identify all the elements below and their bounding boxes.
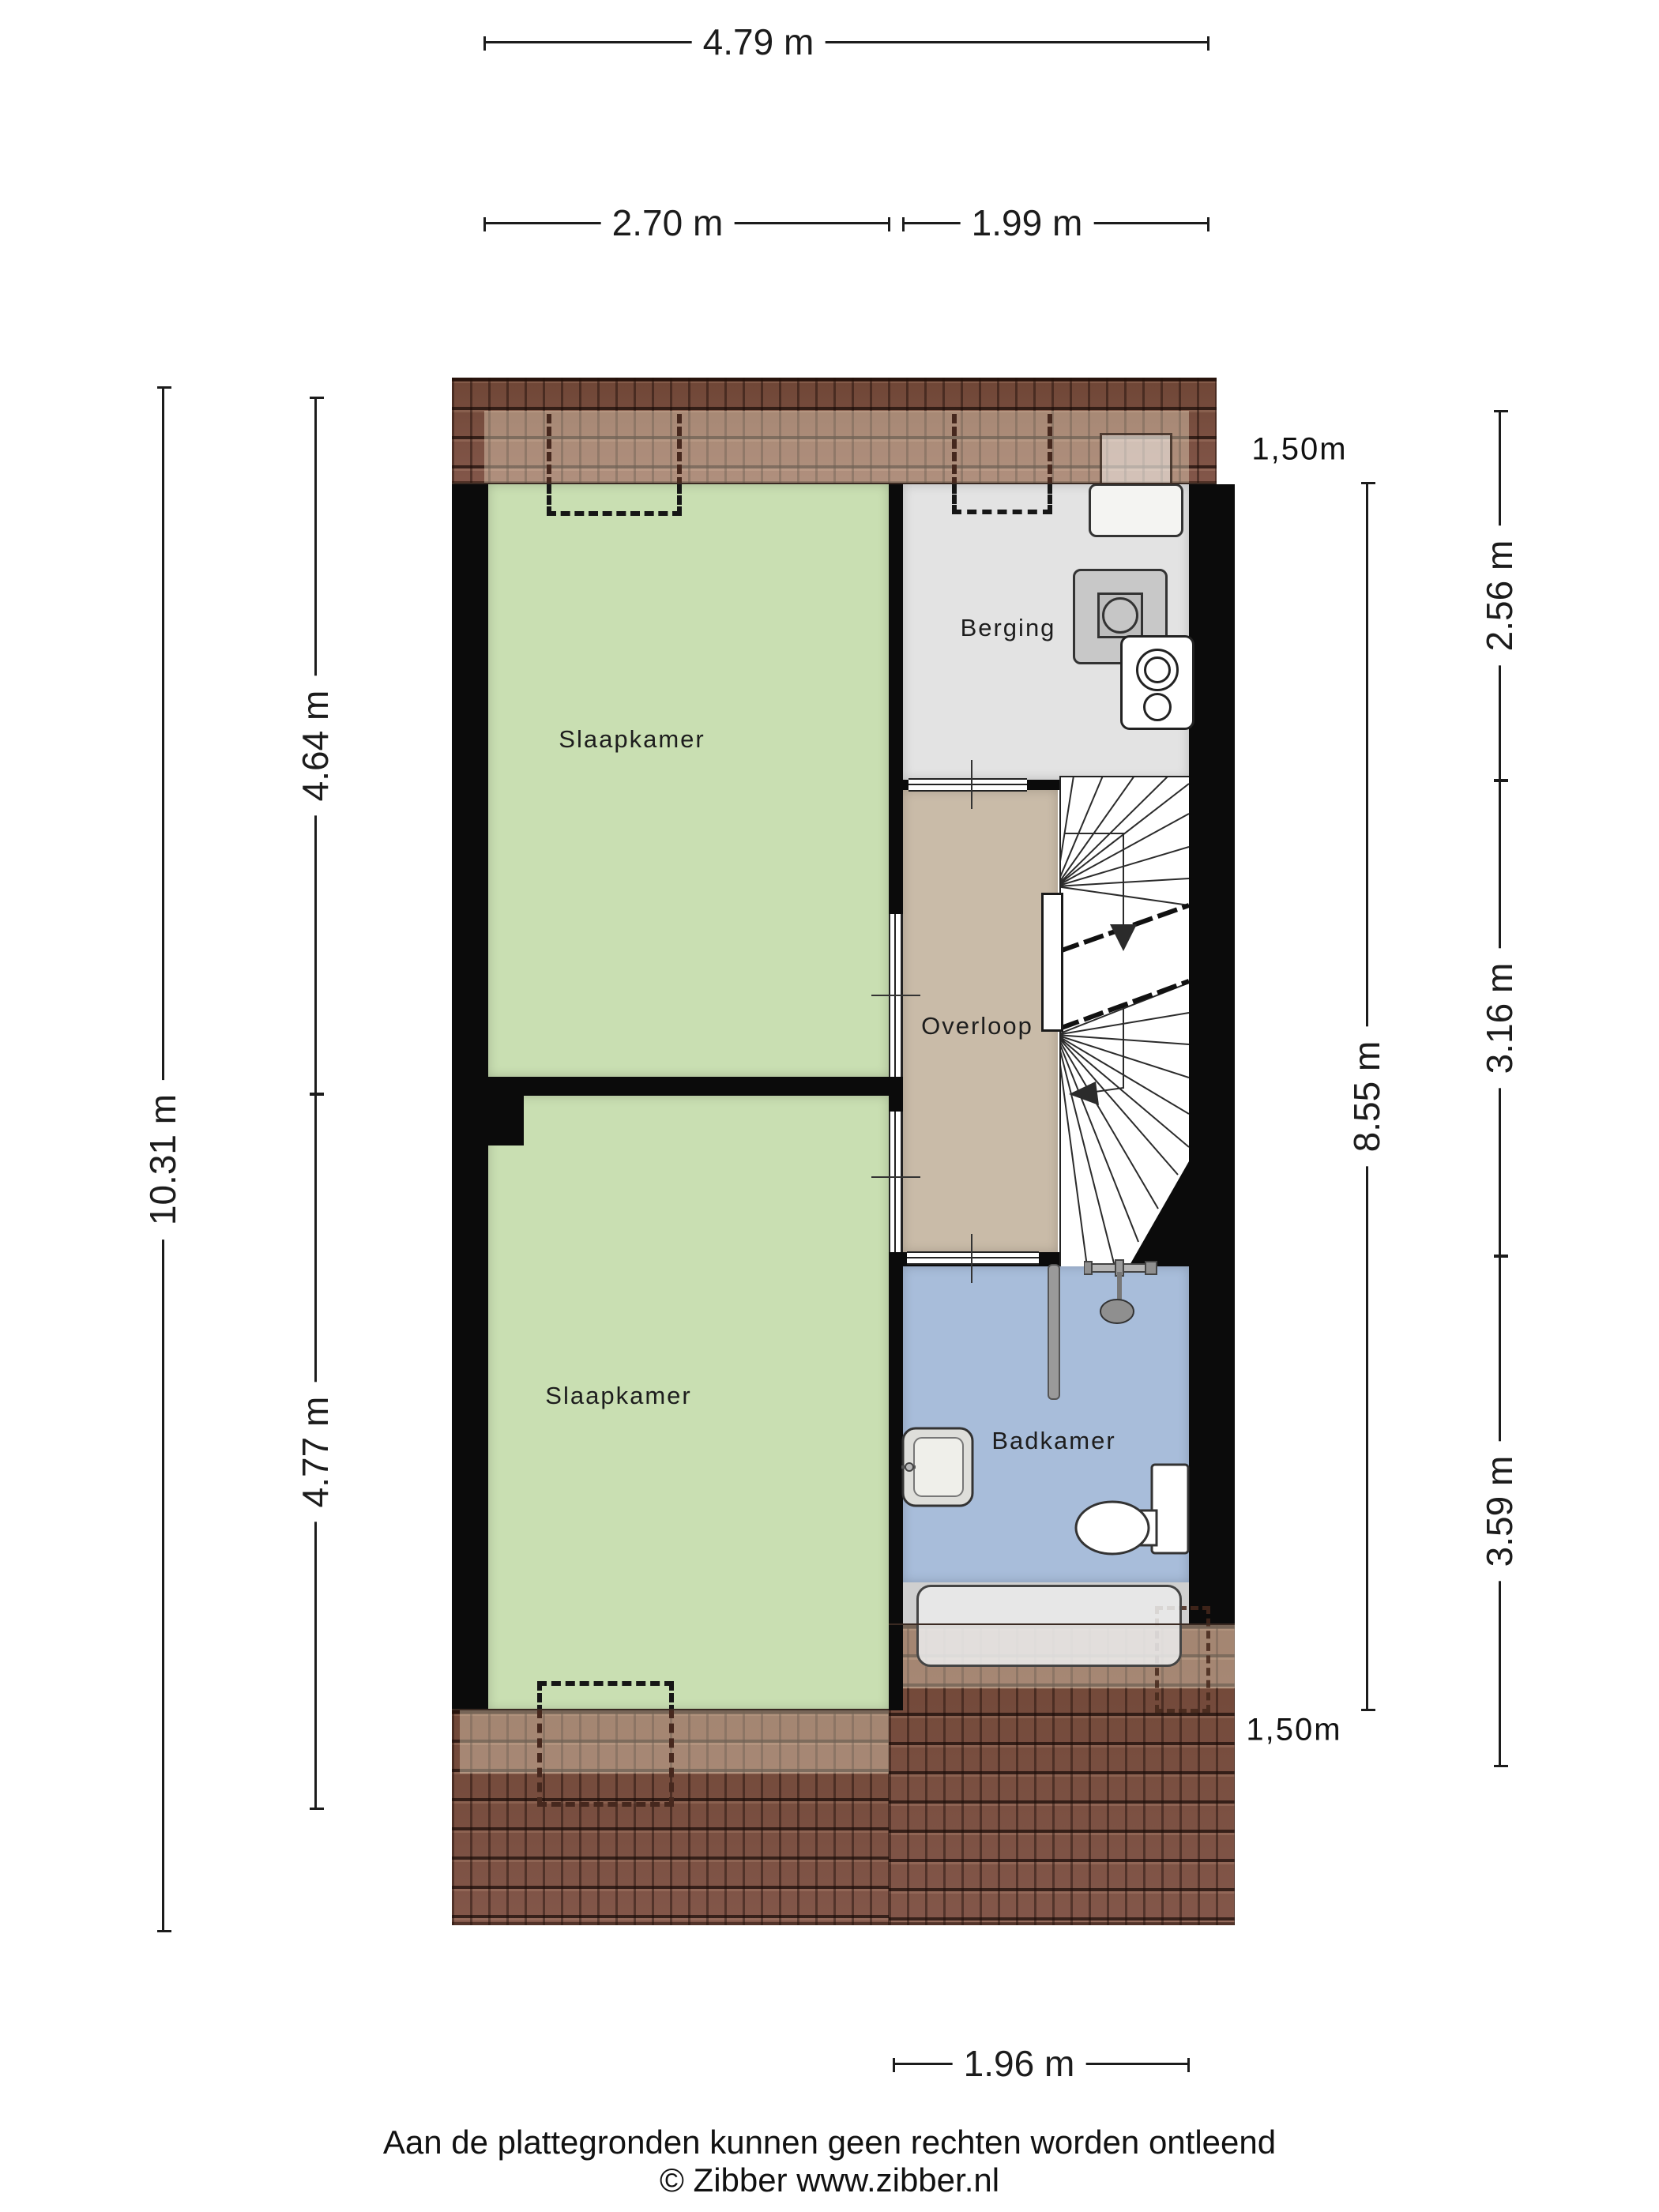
label-slaapkamer-top: Slaapkamer: [559, 725, 705, 754]
shower-head-icon: [1084, 1258, 1159, 1333]
door-berging-tick: [971, 760, 972, 809]
interior-window-overloop-lower: [889, 1112, 903, 1252]
dormer-window-slaapkamer-bottom-roof: [537, 1709, 674, 1807]
roof-edge-bottom-left: [452, 1709, 889, 1710]
door-badkamer-tick: [971, 1234, 972, 1283]
wall-center-upper: [889, 484, 903, 914]
dim-label-bottom: 1.96 m: [953, 2041, 1086, 2086]
dim-label-right-lower: 3.59 m: [1477, 1442, 1522, 1582]
wall-between-bedrooms-left-block: [488, 1077, 524, 1145]
roof-window-ghost-icon: [1100, 433, 1172, 490]
label-slaapkamer-bottom: Slaapkamer: [545, 1382, 691, 1410]
bathtub-icon: [916, 1585, 1182, 1667]
wall-left: [452, 484, 488, 1710]
headroom-label-top: 1,50m: [1251, 432, 1347, 468]
label-berging: Berging: [961, 614, 1056, 642]
shower-glass-panel: [1048, 1264, 1060, 1400]
dormer-window-berging-roof: [952, 414, 1052, 487]
wall-right: [1189, 484, 1235, 1625]
dim-label-left-lower: 4.77 m: [292, 1382, 338, 1522]
staircase: [1059, 776, 1189, 1266]
interior-window-upper-tick: [871, 995, 920, 996]
dim-label-top-left: 2.70 m: [601, 200, 735, 246]
dim-label-right-total: 8.55 m: [1344, 1027, 1390, 1167]
footer-disclaimer: Aan de plattegronden kunnen geen rechten…: [0, 2124, 1659, 2161]
dormer-window-slaapkamer-top-roof: [547, 414, 682, 487]
toilet-icon: [1071, 1461, 1190, 1556]
dim-label-left-upper: 4.64 m: [292, 676, 338, 816]
label-overloop: Overloop: [921, 1012, 1033, 1040]
roof-window-icon: [1089, 483, 1183, 537]
dim-label-left-total: 10.31 m: [140, 1080, 186, 1240]
dim-label-top-total: 4.79 m: [692, 19, 826, 65]
roof-edge-bottom-right: [889, 1623, 1235, 1625]
floorplan-page: Slaapkamer Berging Overloop Slaapkamer B…: [0, 0, 1659, 2212]
footer-copyright: © Zibber www.zibber.nl: [0, 2161, 1659, 2199]
roof-eave-overlay-bottom-left: [460, 1710, 889, 1774]
dormer-window-berging: [952, 484, 1052, 514]
stair-balustrade: [1041, 893, 1063, 1032]
door-badkamer: [907, 1251, 1039, 1265]
headroom-label-bottom: 1,50m: [1246, 1713, 1341, 1748]
door-berging: [908, 778, 1027, 792]
interior-window-lower-tick: [871, 1176, 920, 1178]
room-slaapkamer-top: [488, 484, 889, 1077]
roof-edge-top: [452, 483, 1217, 484]
boiler-icon: [1120, 635, 1194, 730]
dim-label-right-upper: 2.56 m: [1477, 526, 1522, 666]
sink-icon: [901, 1427, 974, 1507]
dim-line-top-total: [484, 41, 1209, 43]
dim-label-right-middle: 3.16 m: [1477, 949, 1522, 1089]
dim-label-top-right: 1.99 m: [961, 200, 1094, 246]
label-badkamer: Badkamer: [991, 1427, 1115, 1455]
dormer-window-slaapkamer-top: [547, 484, 682, 516]
